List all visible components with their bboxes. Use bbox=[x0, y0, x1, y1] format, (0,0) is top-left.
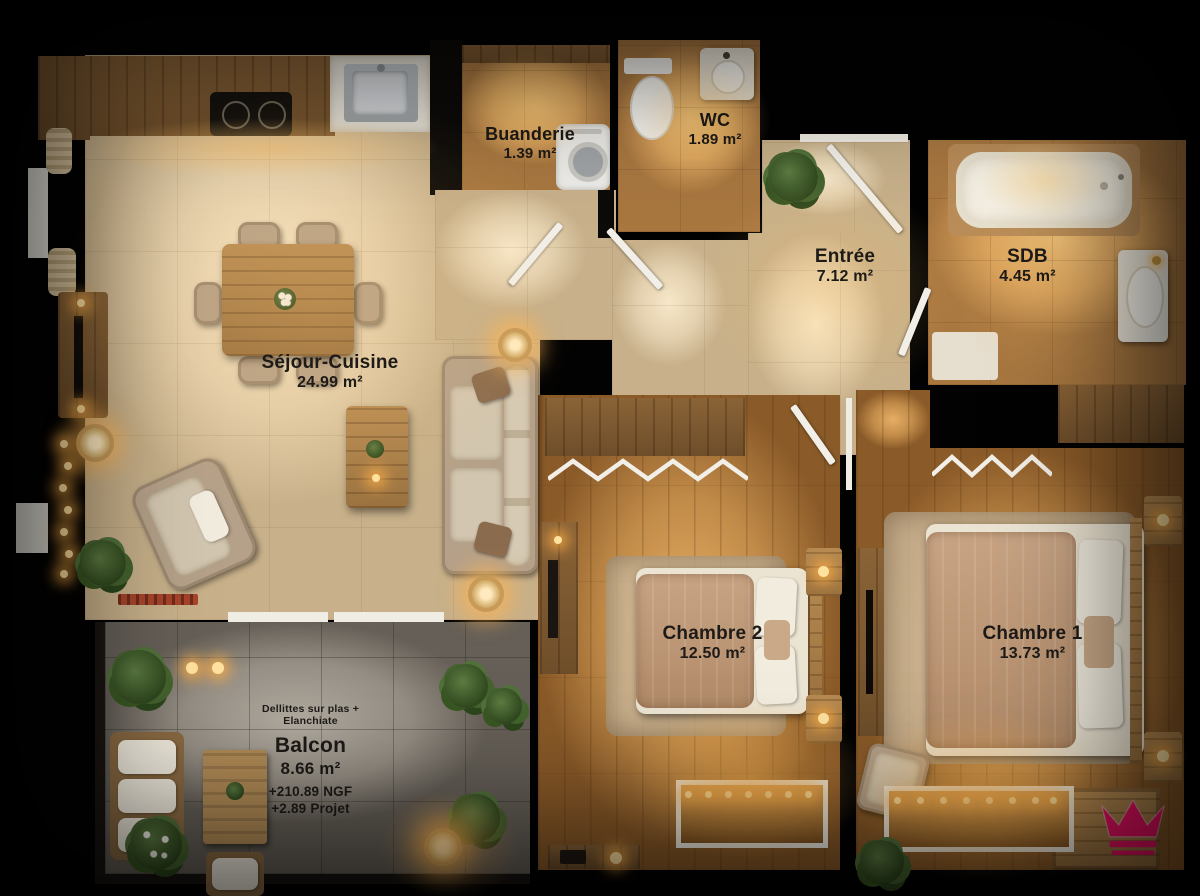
floor-plan: Séjour-Cuisine 24.99 m² Buanderie 1.39 m… bbox=[0, 0, 1200, 896]
sink-faucet bbox=[377, 64, 385, 72]
toilet-tank bbox=[624, 58, 672, 74]
table-centerpiece bbox=[274, 288, 296, 310]
chambre1-headboard bbox=[1130, 518, 1142, 762]
balcony-note-line1: Dellittes sur plas + bbox=[228, 703, 393, 715]
wc-basin-faucet bbox=[723, 52, 730, 59]
sdb-vanity bbox=[1118, 250, 1168, 342]
nightstand-lamp bbox=[818, 713, 829, 724]
candle-light bbox=[745, 791, 752, 798]
string-lights bbox=[58, 440, 72, 580]
candle-light bbox=[917, 797, 924, 804]
candle-light bbox=[685, 791, 692, 798]
chambre2-window bbox=[676, 780, 828, 848]
balcony-flower-pot bbox=[130, 818, 182, 870]
entree-plant bbox=[768, 152, 818, 202]
room-area: 1.89 m² bbox=[655, 131, 775, 149]
room-area: 7.12 m² bbox=[765, 268, 925, 287]
bathtub-inner bbox=[956, 152, 1132, 228]
string-light-bulb bbox=[59, 484, 67, 492]
curtain-upper bbox=[46, 128, 72, 174]
string-light-bulb bbox=[60, 440, 68, 448]
living-plant bbox=[80, 540, 126, 586]
candle-light bbox=[805, 791, 812, 798]
nightstand-lamp bbox=[1157, 750, 1169, 762]
room-name: Entrée bbox=[765, 246, 925, 268]
room-label-chambre2: Chambre 2 12.50 m² bbox=[625, 623, 800, 664]
balcony-plant-topleft bbox=[112, 650, 166, 704]
room-name: Séjour-Cuisine bbox=[225, 352, 435, 374]
console-lamp-bottom bbox=[77, 405, 85, 413]
vanity-basin bbox=[1126, 266, 1164, 328]
balcony-chair-cushion bbox=[212, 858, 258, 890]
buanderie-shelf bbox=[462, 45, 610, 63]
dining-chair bbox=[194, 282, 222, 324]
room-label-balcon: Dellittes sur plas + Elanchiate Balcon 8… bbox=[228, 703, 393, 818]
candle-light bbox=[785, 791, 792, 798]
chambre2-low-lamp bbox=[610, 852, 622, 864]
balcony-lantern bbox=[186, 662, 198, 674]
floor-lamp-bottom bbox=[468, 576, 504, 612]
bedroom-divider-panel bbox=[846, 398, 852, 490]
room-label-buanderie: Buanderie 1.39 m² bbox=[455, 124, 605, 163]
burner-left bbox=[222, 101, 250, 129]
string-light-bulb bbox=[60, 570, 68, 578]
kitchen-cooktop bbox=[210, 92, 292, 136]
balcony-plant-bottomright bbox=[452, 794, 500, 842]
balcony-plant-right2 bbox=[486, 688, 522, 724]
vanity-faucet-gold bbox=[1152, 256, 1161, 265]
string-light-bulb bbox=[65, 550, 73, 558]
candle-light bbox=[725, 791, 732, 798]
candle-light bbox=[765, 791, 772, 798]
bathtub-drain bbox=[1100, 182, 1108, 190]
balcony-lantern bbox=[212, 662, 224, 674]
dining-chair bbox=[354, 282, 382, 324]
coffee-table-candle bbox=[372, 474, 380, 482]
chambre2-folding-doors-icon bbox=[548, 456, 748, 484]
curtain-lower bbox=[48, 248, 76, 296]
balcony-sofa-cushion bbox=[118, 740, 176, 774]
console-lamp-top bbox=[77, 299, 85, 307]
room-name: WC bbox=[655, 110, 775, 131]
room-label-sejour: Séjour-Cuisine 24.99 m² bbox=[225, 352, 435, 393]
balcony-sofa-cushion bbox=[118, 779, 176, 813]
burner-right bbox=[258, 101, 286, 129]
entry-door-frame bbox=[800, 134, 908, 142]
bathtub bbox=[948, 144, 1140, 236]
chambre1-wardrobe bbox=[1058, 385, 1184, 443]
candle-light bbox=[1050, 797, 1057, 804]
room-area: 13.73 m² bbox=[945, 645, 1120, 664]
sink-basin bbox=[352, 71, 408, 115]
room-label-chambre1: Chambre 1 13.73 m² bbox=[945, 623, 1120, 664]
balcony-big-lantern bbox=[424, 828, 462, 866]
room-area: 4.45 m² bbox=[950, 268, 1105, 287]
crown-logo-icon bbox=[1094, 796, 1172, 862]
candle-light bbox=[1009, 797, 1016, 804]
chambre2-wardrobe bbox=[545, 398, 745, 456]
doormat bbox=[118, 594, 198, 605]
wc-basin-bowl bbox=[711, 60, 745, 94]
balcony-plant-right bbox=[444, 664, 488, 708]
candle-light bbox=[986, 797, 993, 804]
room-name: Buanderie bbox=[455, 124, 605, 145]
rattan-pendant-lamp bbox=[76, 424, 114, 462]
candle-light bbox=[894, 797, 901, 804]
balcony-door-threshold bbox=[334, 612, 444, 622]
balcony-door-threshold bbox=[228, 612, 328, 622]
candle-light bbox=[1032, 797, 1039, 804]
room-floor-entree bbox=[612, 240, 748, 398]
room-name: Chambre 1 bbox=[945, 623, 1120, 645]
balcony-level-ngf: +210.89 NGF bbox=[228, 784, 393, 801]
room-area: 24.99 m² bbox=[225, 374, 435, 393]
room-label-wc: WC 1.89 m² bbox=[655, 110, 775, 149]
wc-washbasin bbox=[700, 48, 754, 100]
chambre2-desk bbox=[540, 522, 578, 674]
string-light-bulb bbox=[64, 506, 72, 514]
room-name: Balcon bbox=[228, 734, 393, 759]
tv-screen-chambre1 bbox=[866, 590, 873, 694]
room-label-sdb: SDB 4.45 m² bbox=[950, 246, 1105, 287]
room-area: 8.66 m² bbox=[228, 759, 393, 779]
window-left bbox=[28, 168, 48, 258]
floor-corridor bbox=[856, 390, 930, 452]
room-name: SDB bbox=[950, 246, 1105, 268]
balcony-level-projet: +2.89 Projet bbox=[228, 801, 393, 818]
tv-screen bbox=[74, 316, 83, 398]
room-label-entree: Entrée 7.12 m² bbox=[765, 246, 925, 287]
balcony-chair bbox=[206, 852, 264, 896]
plant-between-windows bbox=[860, 840, 904, 884]
tv-console bbox=[58, 292, 108, 418]
chambre2-desk-slab bbox=[548, 560, 558, 638]
floor-lamp-top bbox=[498, 328, 532, 362]
bathmat bbox=[932, 332, 998, 380]
book-stack bbox=[560, 850, 586, 864]
sofa bbox=[442, 356, 538, 574]
candle-light bbox=[705, 791, 712, 798]
room-area: 1.39 m² bbox=[455, 145, 605, 163]
string-light-bulb bbox=[60, 528, 68, 536]
balcony-note-line2: Elanchiate bbox=[228, 715, 393, 727]
candle-light bbox=[940, 797, 947, 804]
string-light-bulb bbox=[64, 462, 72, 470]
wall-buanderie-left bbox=[430, 40, 462, 195]
chambre1-folding-doors-icon bbox=[932, 452, 1052, 480]
chambre1-pillow bbox=[1077, 539, 1124, 624]
chambre2-desk-lamp bbox=[554, 536, 562, 544]
coffee-table-plant bbox=[366, 440, 384, 458]
room-name: Chambre 2 bbox=[625, 623, 800, 645]
room-area: 12.50 m² bbox=[625, 645, 800, 664]
window-left-lower bbox=[16, 503, 48, 553]
candle-light bbox=[963, 797, 970, 804]
kitchen-sink bbox=[344, 64, 418, 122]
bathtub-faucet bbox=[1118, 174, 1124, 180]
nightstand-lamp bbox=[1157, 514, 1169, 526]
nightstand-lamp bbox=[818, 566, 829, 577]
chambre1-window bbox=[884, 786, 1074, 852]
